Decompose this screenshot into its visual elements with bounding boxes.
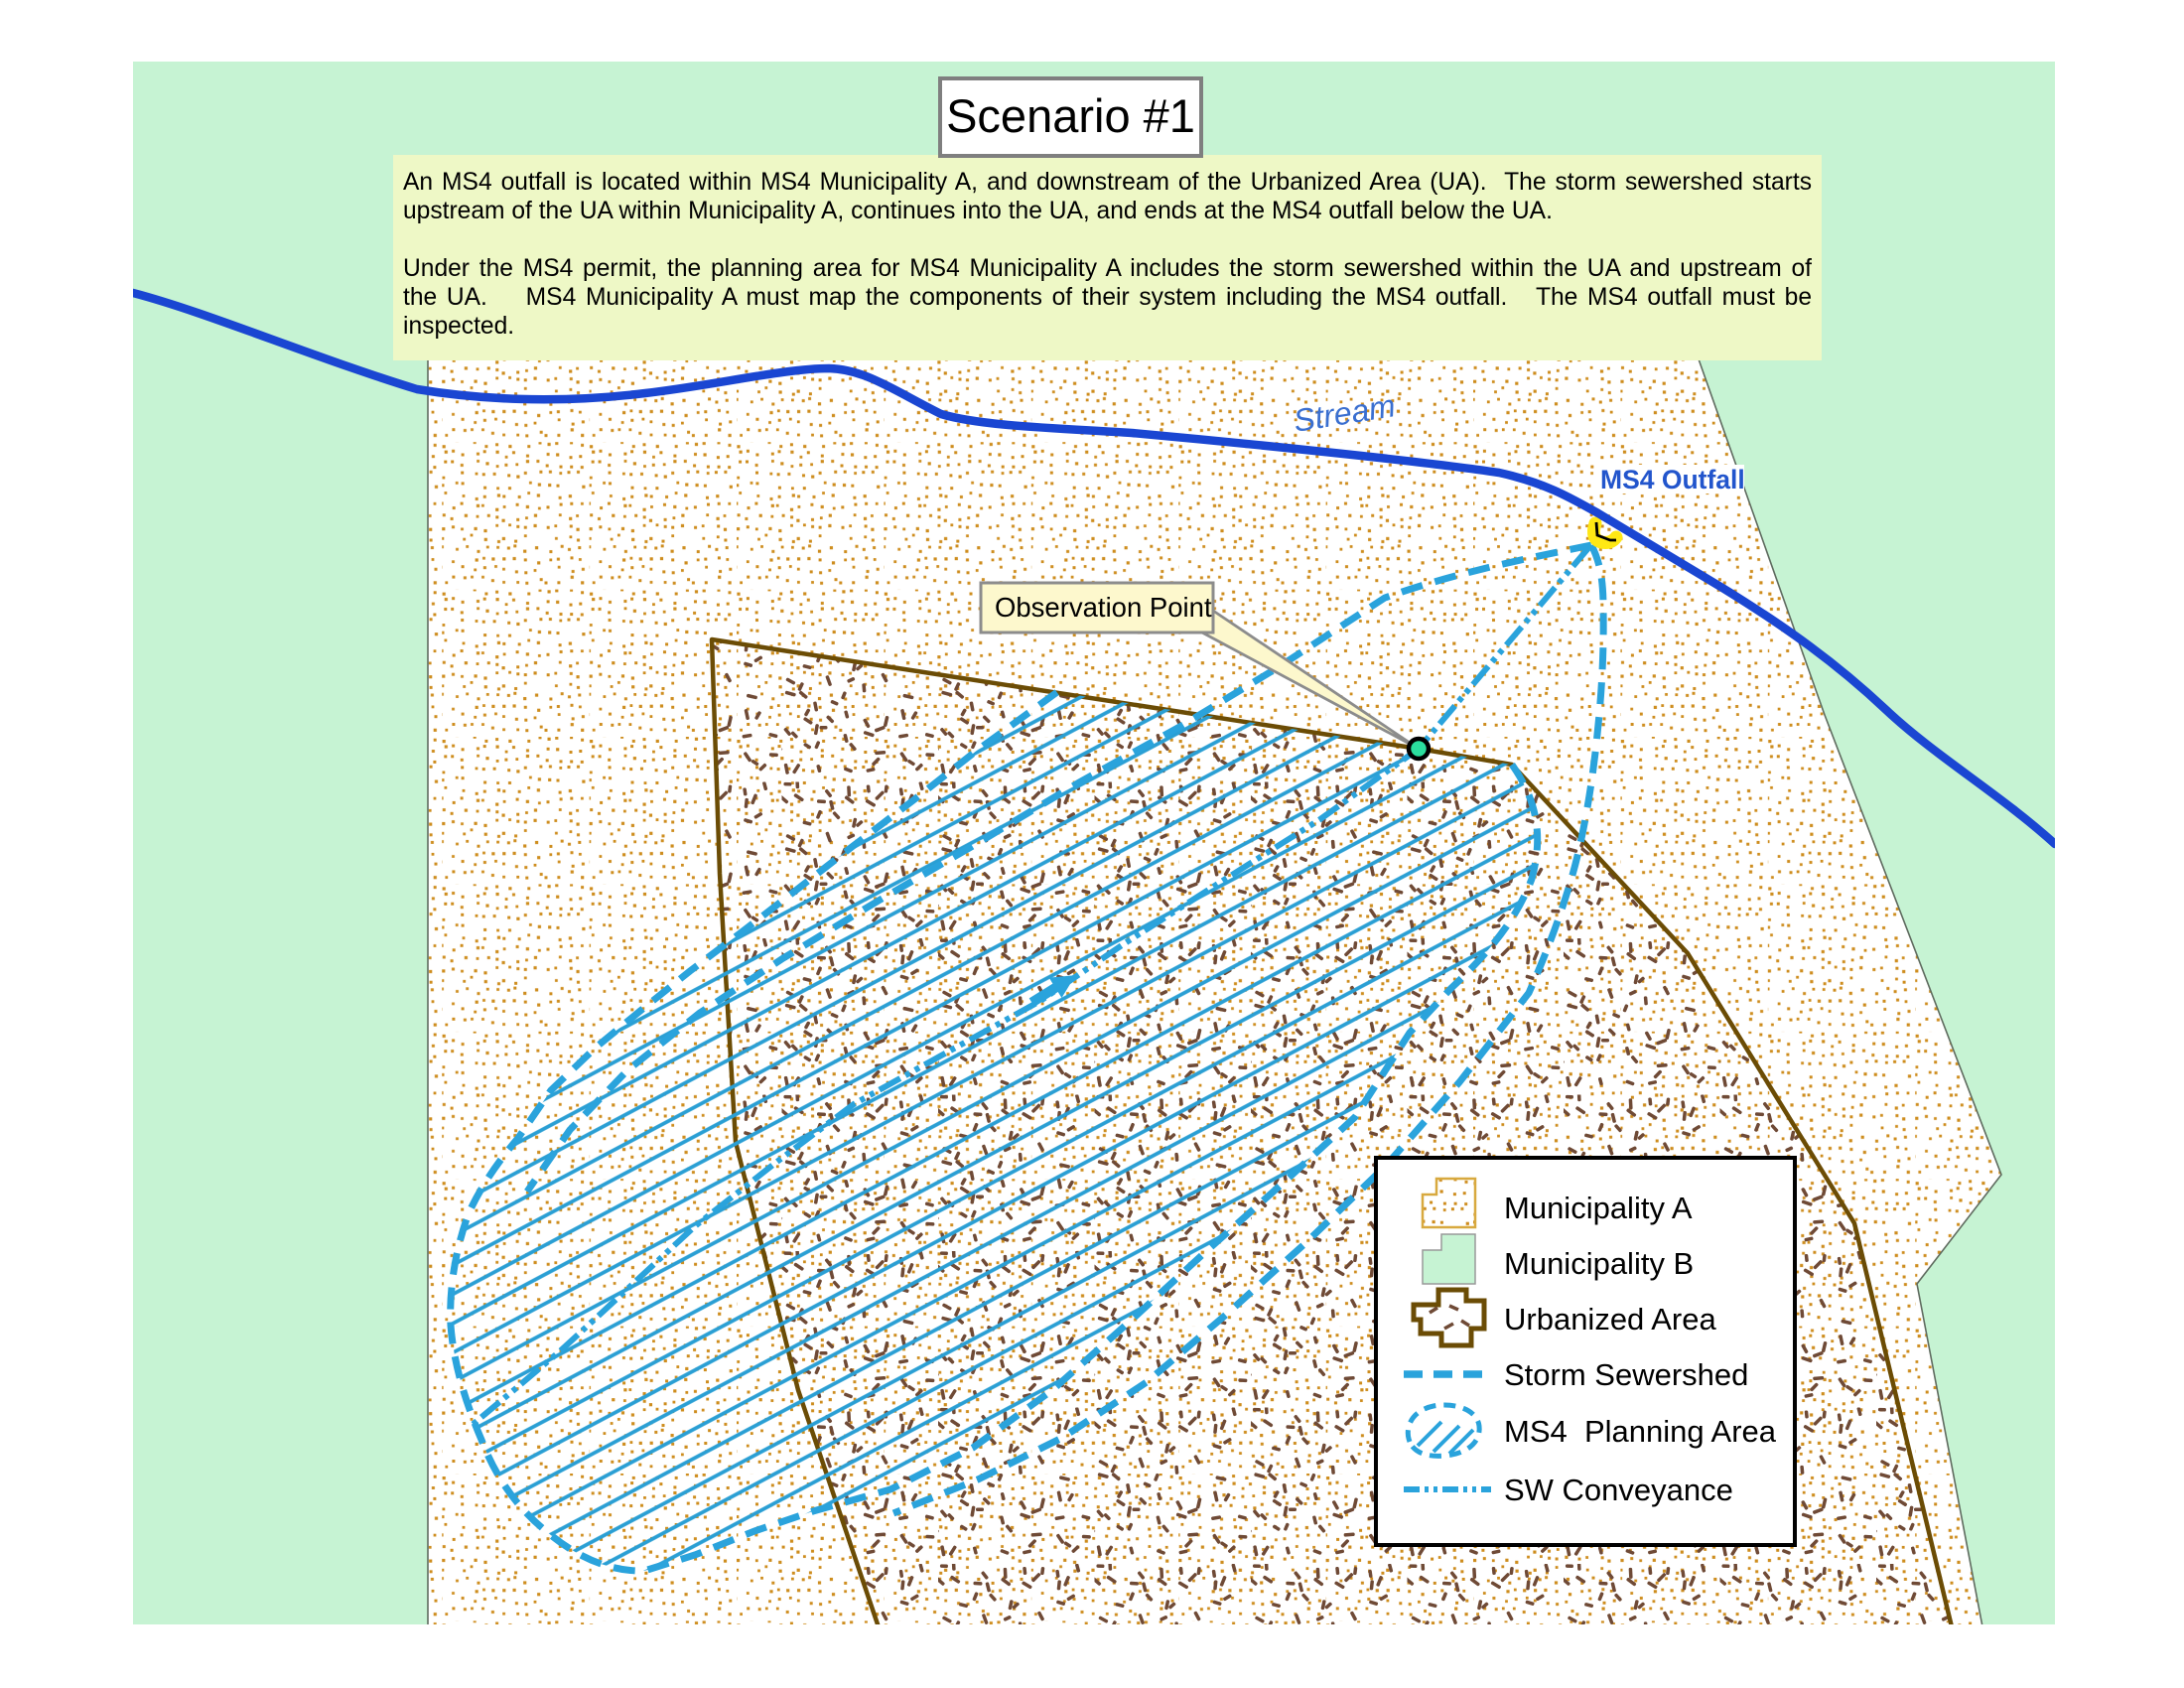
svg-text:MS4 Planning Area: MS4 Planning Area	[1504, 1414, 1777, 1449]
svg-text:Observation Point: Observation Point	[995, 592, 1212, 623]
svg-text:Municipality B: Municipality B	[1504, 1246, 1694, 1281]
svg-text:SW Conveyance: SW Conveyance	[1504, 1473, 1733, 1507]
svg-text:MS4 Outfall: MS4 Outfall	[1600, 465, 1745, 494]
svg-text:Storm Sewershed: Storm Sewershed	[1504, 1357, 1748, 1392]
svg-text:Urbanized Area: Urbanized Area	[1504, 1302, 1716, 1336]
svg-text:Municipality A: Municipality A	[1504, 1191, 1693, 1225]
